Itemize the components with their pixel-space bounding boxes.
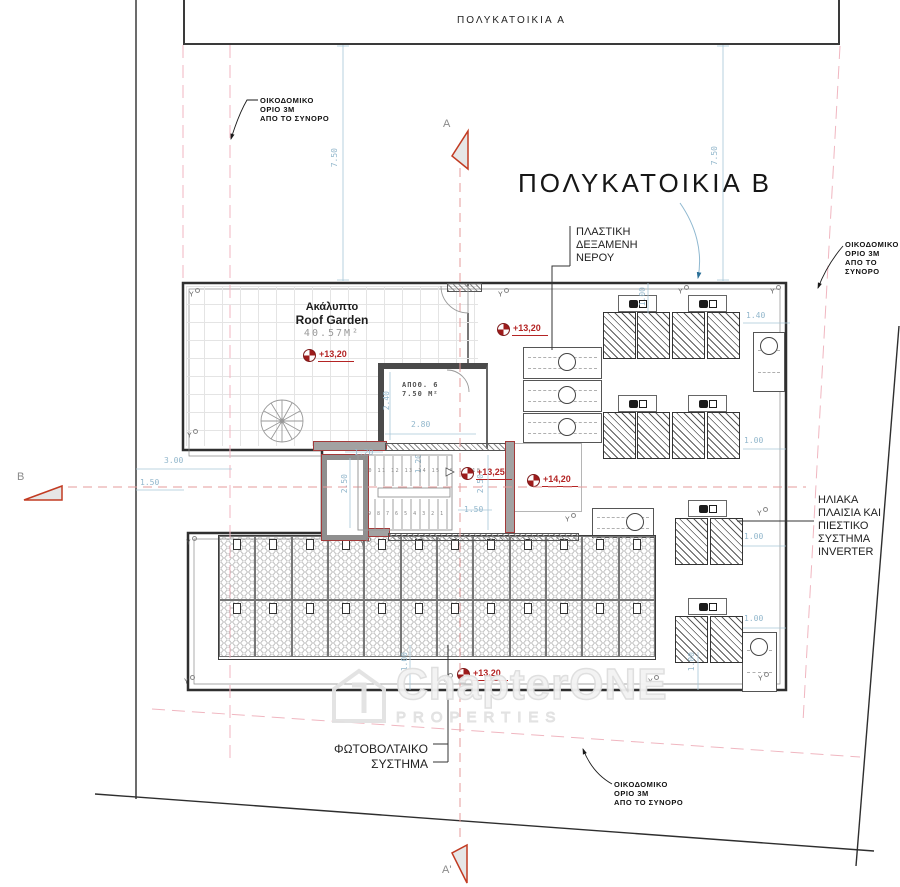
building-b-title: ΠΟΛΥΚΑΤΟΙΚΙΑ Β — [518, 168, 772, 199]
pv-note-line: ΦΩΤΟΒΟΛΤΑΙΚΟ — [322, 742, 428, 757]
tank-cap-icon — [626, 513, 644, 531]
column-marker: Y — [770, 285, 781, 295]
column-marker: Y — [757, 507, 768, 517]
tank-cap-icon — [558, 386, 576, 404]
column-marker: Y — [186, 536, 197, 546]
pressure-pump-unit — [688, 500, 727, 517]
pressure-pump-unit — [688, 598, 727, 615]
elevation-marker: +13,20 — [497, 323, 548, 336]
solar-panel — [603, 412, 636, 459]
pv-cell — [473, 536, 509, 600]
boundary-note-left: ΟΙΚΟΔΟΜΙΚΟ ΟΡΙΟ 3Μ ΑΠΟ ΤΟ ΣΥΝΟΡΟ — [260, 96, 329, 123]
storage-room-name: ΑΠΟΘ. 6 — [402, 381, 439, 390]
dimension: 3.00 — [164, 456, 183, 465]
pv-note-line: ΣΥΣΤΗΜΑ — [322, 757, 428, 772]
dimension: 1.40 — [746, 311, 765, 320]
solar-note-line: ΠΛΑΙΣΙΑ ΚΑΙ — [818, 507, 881, 520]
stair-numbers-lower: 9 8 7 6 5 4 3 2 1 — [368, 511, 445, 517]
pv-cell — [328, 600, 364, 657]
section-marker-a-label: A — [443, 118, 450, 130]
pv-cell — [292, 536, 328, 600]
column-marker: Y — [360, 537, 371, 547]
pv-cell — [582, 536, 618, 600]
pv-cell — [401, 536, 437, 600]
floor-plan-canvas: ΠΟΛΥΚΑΤΟΙΚΙΑ Α ΠΟΛΥΚΑΤΟΙΚΙΑ Β Ακάλυπτο R… — [0, 0, 900, 887]
boundary-leader-left — [231, 100, 258, 139]
elevator-shaft — [322, 455, 368, 540]
water-tank — [592, 508, 654, 538]
solar-panel — [710, 518, 743, 565]
section-marker-b — [24, 486, 62, 500]
setback-line — [803, 46, 840, 722]
elevation-value: +13,25 — [476, 467, 512, 480]
water-tank-note-line: ΔΕΞΑΜΕΝΗ — [576, 239, 638, 252]
boundary-note-line: ΑΠΟ ΤΟ ΣΥΝΟΡΟ — [845, 258, 900, 276]
boundary-note-line: ΟΡΙΟ 3Μ — [614, 789, 683, 798]
watermark-sub: PROPERTIES — [396, 709, 668, 726]
solar-panel — [603, 312, 636, 359]
column-marker: Y — [678, 285, 689, 295]
wall-hatched — [447, 283, 482, 292]
tank-cap-icon — [750, 638, 768, 656]
elevation-value: +13,20 — [318, 349, 354, 362]
pv-cell — [437, 536, 473, 600]
pv-cell — [546, 536, 582, 600]
water-tank-note-line: ΝΕΡΟΥ — [576, 252, 638, 265]
section-marker-a — [452, 131, 468, 169]
water-tank-leader — [552, 226, 570, 350]
boundary-note-right: ΟΙΚΟΔΟΜΙΚΟ ΟΡΙΟ 3Μ ΑΠΟ ΤΟ ΣΥΝΟΡΟ — [845, 240, 900, 276]
dimension: 1.00 — [744, 614, 763, 623]
tank-cap-icon — [760, 337, 778, 355]
pv-cell — [219, 536, 255, 600]
dimension: 1.00 — [687, 652, 696, 671]
elevation-value: +14,20 — [542, 474, 578, 487]
solar-panel — [637, 412, 670, 459]
solar-panel — [672, 312, 705, 359]
column-marker: Y — [184, 675, 195, 685]
pv-cell — [473, 600, 509, 657]
section-marker-b-label: B — [17, 471, 24, 483]
pv-cell — [401, 600, 437, 657]
tank-cap-icon — [558, 353, 576, 371]
roof-garden-name-en: Roof Garden — [272, 313, 392, 327]
solar-note-line: ΗΛΙΑΚΑ — [818, 494, 881, 507]
elevation-marker: +14,20 — [527, 474, 578, 487]
watermark-brand: ChapterONE — [396, 663, 668, 707]
solar-panel — [675, 518, 708, 565]
pv-cell — [328, 536, 364, 600]
storage-room-area: 7.50 Μ² — [402, 390, 439, 399]
site-boundary-right — [856, 326, 899, 866]
boundary-leader-bottom — [583, 749, 612, 784]
solar-panel — [707, 412, 740, 459]
solar-note-line: ΣΥΣΤΗΜΑ — [818, 533, 881, 546]
boundary-note-line: ΟΙΚΟΔΟΜΙΚΟ — [260, 96, 329, 105]
pv-system-note: ΦΩΤΟΒΟΛΤΑΙΚΟ ΣΥΣΤΗΜΑ — [322, 742, 428, 772]
watermark-logo — [330, 663, 388, 725]
section-marker-a-prime — [452, 845, 467, 883]
pv-cell — [546, 600, 582, 657]
pv-cell — [619, 536, 655, 600]
solar-panel — [637, 312, 670, 359]
column-marker: Y — [565, 513, 576, 523]
stair-well — [358, 455, 452, 530]
boundary-note-line: ΟΙΚΟΔΟΜΙΚΟ — [845, 240, 900, 249]
dimension: 1.50 — [140, 478, 159, 487]
pressure-pump-unit — [618, 395, 657, 412]
dimension: 1.50 — [464, 505, 483, 514]
pv-cell — [619, 600, 655, 657]
pv-cell — [255, 600, 291, 657]
pv-cell — [364, 600, 400, 657]
elevation-marker: +13,20 — [303, 349, 354, 362]
pv-cell — [582, 600, 618, 657]
benchmark-icon — [303, 349, 316, 362]
solar-panel — [672, 412, 705, 459]
solar-panel — [710, 616, 743, 663]
wall-hatched — [388, 533, 579, 541]
building-a-label: ΠΟΛΥΚΑΤΟΙΚΙΑ Α — [185, 15, 838, 26]
roof-garden-area-label: 40.57M² — [272, 328, 392, 339]
solar-note-line: INVERTER — [818, 546, 881, 559]
column-marker: Y — [187, 429, 198, 439]
wall-hatched — [385, 443, 507, 451]
dimension: 7.50 — [710, 146, 719, 165]
pv-cell — [292, 600, 328, 657]
building-b-leader — [680, 203, 700, 278]
section-marker-a-prime-label: A' — [442, 864, 451, 876]
wall — [505, 441, 515, 533]
pv-cell — [255, 536, 291, 600]
dimension: 7.50 — [330, 148, 339, 167]
solar-note-line: ΠΙΕΣΤΙΚΟ — [818, 520, 881, 533]
benchmark-icon — [461, 467, 474, 480]
elevation-marker: +13,25 — [461, 467, 512, 480]
pressure-pump-unit — [688, 295, 727, 312]
photovoltaic-array — [218, 535, 656, 660]
pressure-pump-unit — [688, 395, 727, 412]
tank-cap-icon — [558, 418, 576, 436]
water-tank-note: ΠΛΑΣΤΙΚΗ ΔΕΞΑΜΕΝΗ ΝΕΡΟΥ — [576, 226, 638, 265]
storage-room-labels: ΑΠΟΘ. 6 7.50 Μ² — [402, 381, 439, 399]
roof-garden-name-gr: Ακάλυπτο — [272, 301, 392, 313]
dimension: 1.00 — [744, 436, 763, 445]
boundary-note-line: ΑΠΟ ΤΟ ΣΥΝΟΡΟ — [260, 114, 329, 123]
dimension: 1.00 — [744, 532, 763, 541]
elevation-value: +13,20 — [512, 323, 548, 336]
dimension: 2.50 — [340, 474, 349, 493]
boundary-note-line: ΑΠΟ ΤΟ ΣΥΝΟΡΟ — [614, 798, 683, 807]
watermark: ChapterONE PROPERTIES — [330, 663, 668, 726]
boundary-note-line: ΟΡΙΟ 3Μ — [260, 105, 329, 114]
dimension: 2.40 — [382, 391, 391, 410]
water-tank-note-line: ΠΛΑΣΤΙΚΗ — [576, 226, 638, 239]
solar-system-note: ΗΛΙΑΚΑ ΠΛΑΙΣΙΑ ΚΑΙ ΠΙΕΣΤΙΚΟ ΣΥΣΤΗΜΑ INVE… — [818, 494, 881, 559]
wall — [313, 441, 387, 451]
pv-cell — [510, 600, 546, 657]
dimension: 1.20 — [414, 454, 423, 473]
benchmark-icon — [527, 474, 540, 487]
boundary-leader-right — [818, 246, 843, 288]
storage-room — [378, 363, 488, 449]
boundary-note-bottom: ΟΙΚΟΔΟΜΙΚΟ ΟΡΙΟ 3Μ ΑΠΟ ΤΟ ΣΥΝΟΡΟ — [614, 780, 683, 807]
building-a-block: ΠΟΛΥΚΑΤΟΙΚΙΑ Α — [183, 0, 840, 45]
column-marker: Y — [758, 672, 769, 682]
solar-panel — [707, 312, 740, 359]
pv-cell — [437, 600, 473, 657]
dimension: 1.00 — [638, 287, 647, 306]
pv-cell — [510, 536, 546, 600]
boundary-note-line: ΟΡΙΟ 3Μ — [845, 249, 900, 258]
dimension: 2.80 — [411, 420, 430, 429]
column-marker: Y — [498, 288, 509, 298]
site-boundary-bottom — [95, 794, 874, 851]
benchmark-icon — [497, 323, 510, 336]
pv-cell — [219, 600, 255, 657]
dimension: 1.20 — [354, 448, 373, 457]
column-marker: Y — [189, 288, 200, 298]
boundary-note-line: ΟΙΚΟΔΟΜΙΚΟ — [614, 780, 683, 789]
stair-rail — [378, 488, 450, 497]
roof-garden-labels: Ακάλυπτο Roof Garden 40.57M² — [272, 301, 392, 339]
